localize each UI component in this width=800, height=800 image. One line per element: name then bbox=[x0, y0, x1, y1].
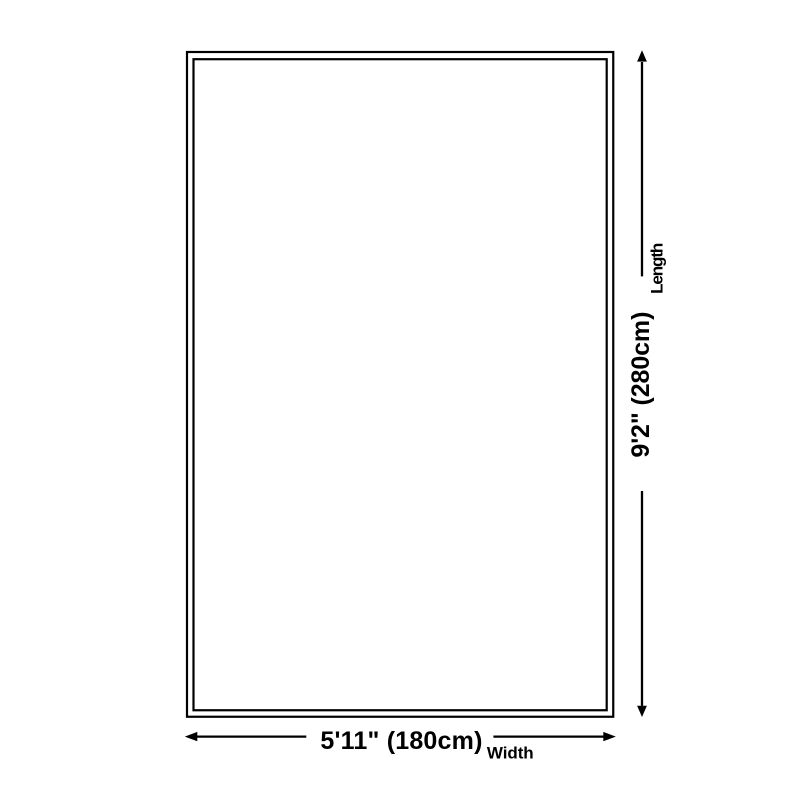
svg-text:Width: Width bbox=[487, 743, 534, 762]
svg-text:9'2" (280cm): 9'2" (280cm) bbox=[627, 312, 655, 458]
svg-text:Length: Length bbox=[647, 243, 666, 294]
svg-text:5'11" (180cm): 5'11" (180cm) bbox=[320, 727, 482, 755]
